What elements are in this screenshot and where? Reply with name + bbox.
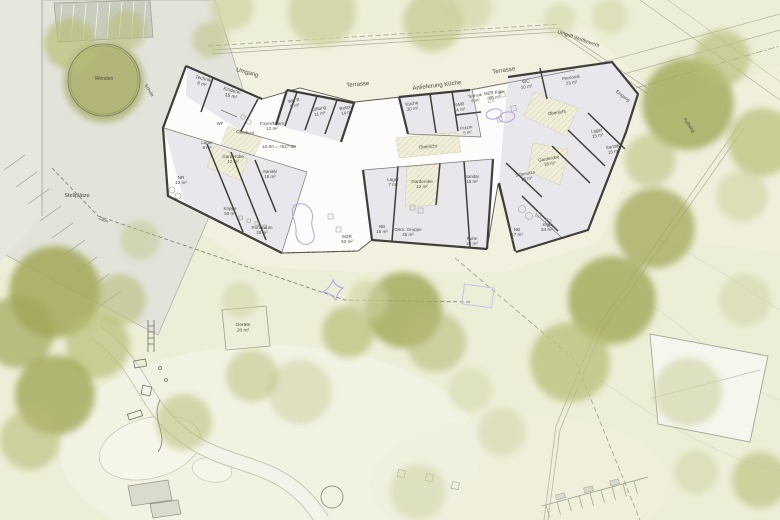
street bbox=[0, 0, 42, 262]
room-label: Lager15 m² bbox=[591, 127, 605, 139]
room-label: MZR62 m² bbox=[341, 234, 353, 244]
site-plan-svg: UmgangTerrasseAnlieferung KücheTerrasseU… bbox=[0, 0, 780, 520]
room-label: Lager7 m² bbox=[387, 177, 399, 187]
room-label: Küche30 m² bbox=[405, 100, 420, 112]
room-label: Kiga54 m² bbox=[541, 222, 553, 232]
label-stellplaetze: Stellplätze bbox=[64, 193, 89, 199]
room-label: WF bbox=[217, 121, 224, 126]
label-level: ±0.00 = +517.00 bbox=[262, 144, 296, 149]
room-label: Lager6 m² bbox=[201, 140, 213, 150]
room-label: Sanitär15 m² bbox=[263, 169, 278, 179]
room-label: Sanitär15 m² bbox=[465, 174, 480, 184]
label-geraete: Geräte20 m² bbox=[236, 322, 251, 334]
site-plan-canvas: UmgangTerrasseAnlieferung KücheTerrasseU… bbox=[0, 0, 780, 520]
room-label: Krippe50 m² bbox=[223, 206, 237, 216]
room-label: Ruhe25 m² bbox=[466, 236, 478, 246]
label-wenden: Wenden bbox=[95, 76, 114, 82]
